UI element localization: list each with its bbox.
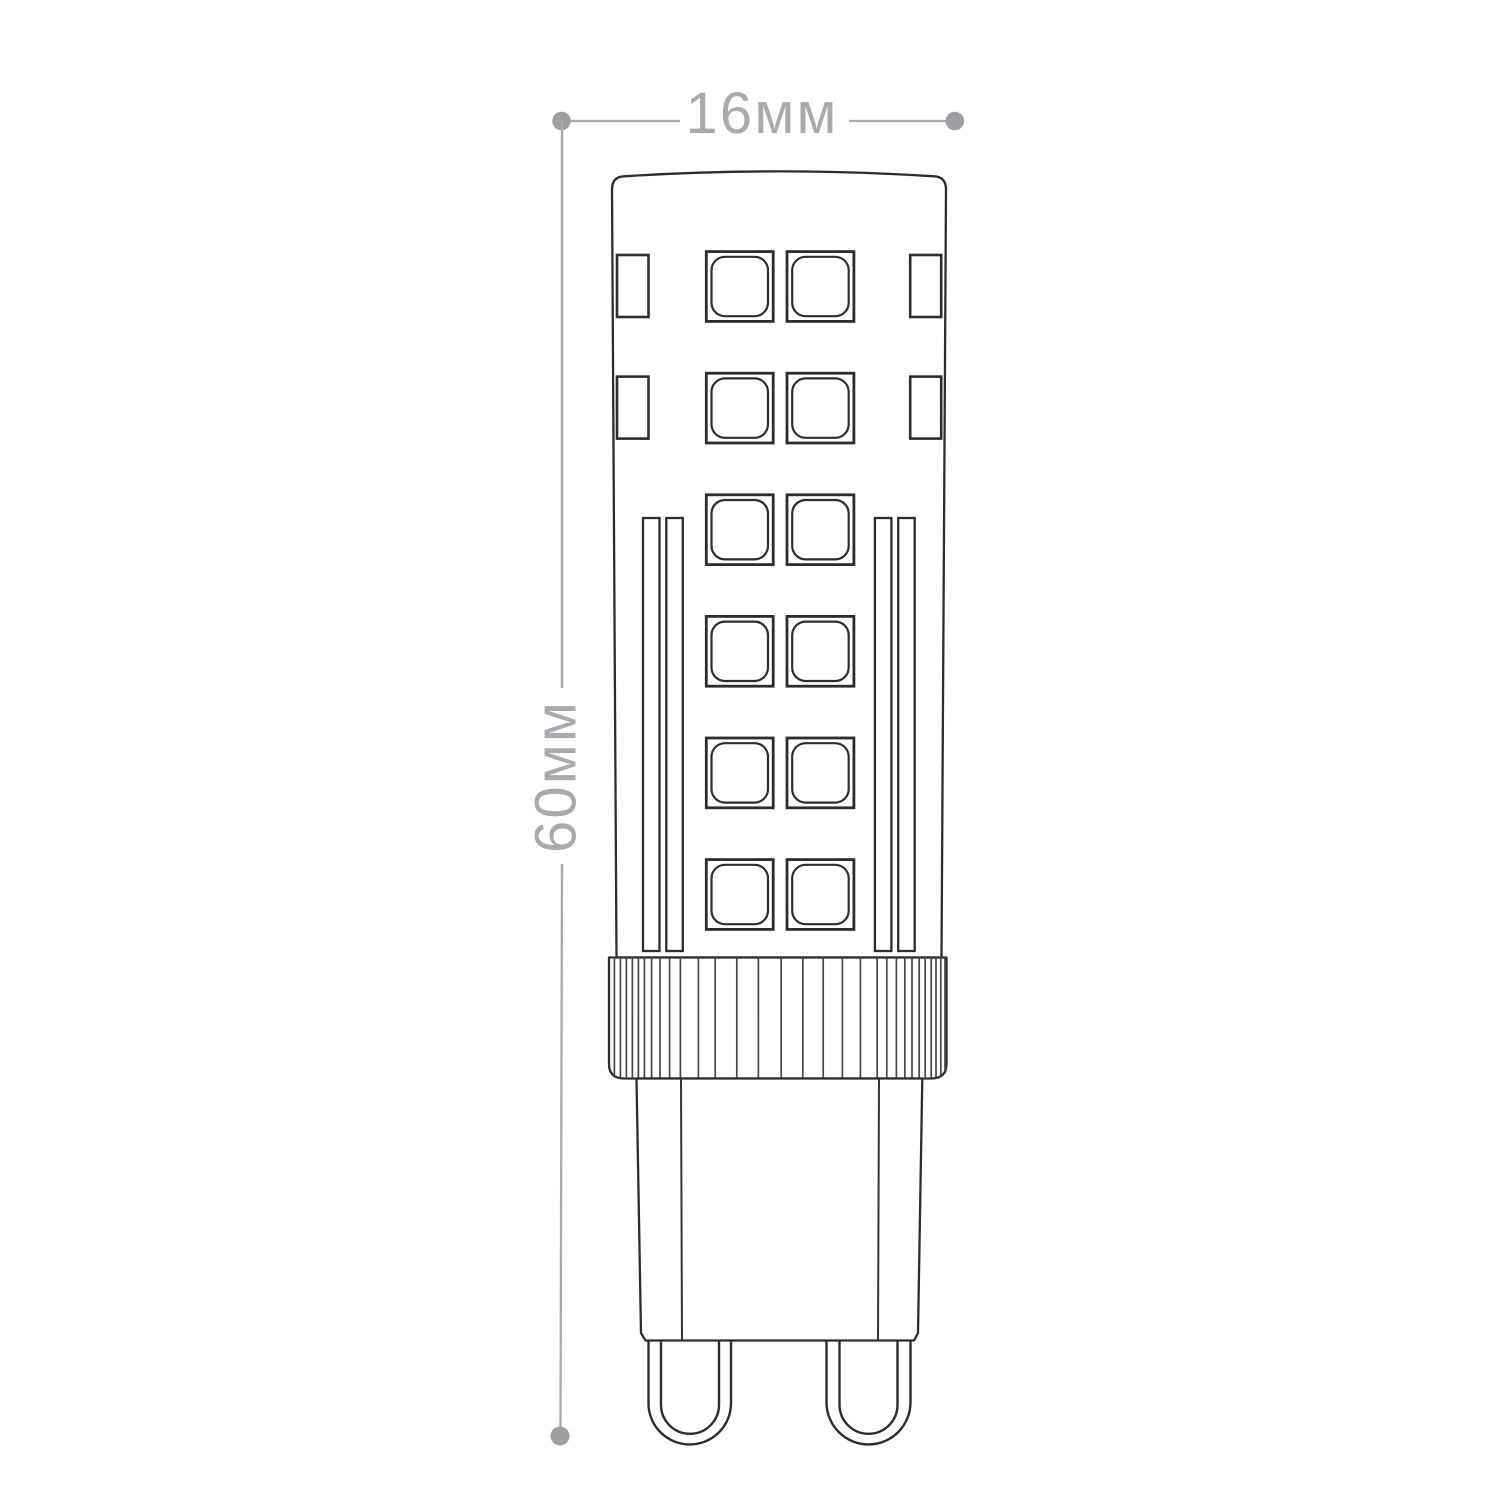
svg-text:16мм: 16мм xyxy=(685,81,838,146)
svg-text:60мм: 60мм xyxy=(524,700,589,853)
